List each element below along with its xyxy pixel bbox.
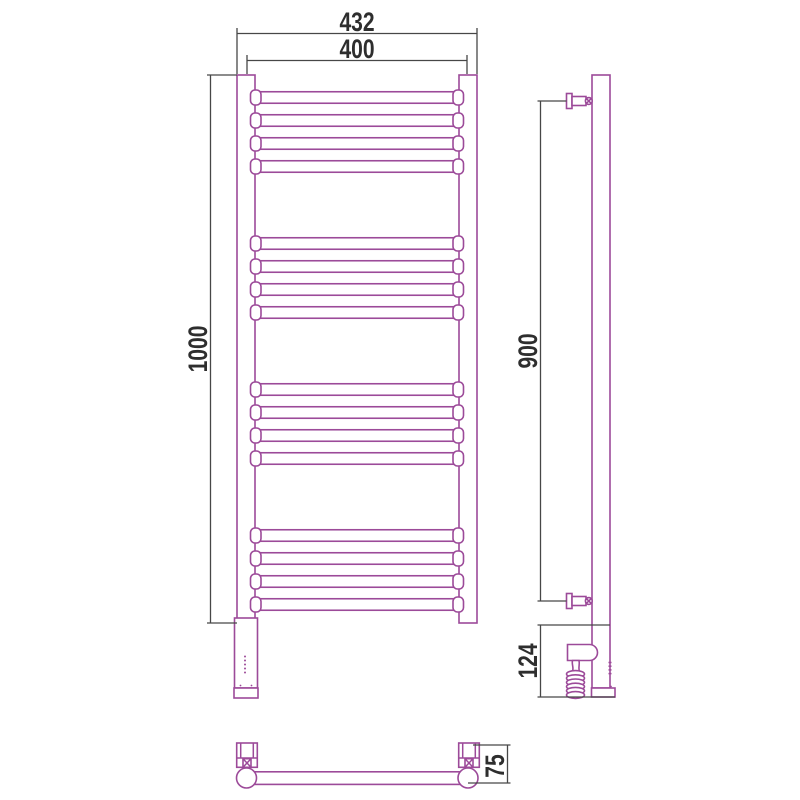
rung-end-fitting [453, 259, 464, 274]
element-dot [251, 685, 253, 687]
rung-end-fitting [453, 382, 464, 397]
rung-end-fitting [453, 597, 464, 612]
rung-body [253, 407, 461, 419]
rung-end-fitting [453, 451, 464, 466]
rung-end-fitting [251, 113, 262, 128]
rung-body [253, 599, 461, 611]
rung-end-fitting [251, 259, 262, 274]
dim-label-432: 432 [339, 8, 374, 38]
element-indicator-dot [244, 664, 246, 666]
rung-end-fitting [251, 551, 262, 566]
power-cord-coil [567, 671, 585, 699]
rung-end-fitting [251, 90, 262, 105]
rung-body [253, 576, 461, 588]
rung-end-fitting [251, 136, 262, 151]
element-housing-side [568, 645, 598, 661]
rung-end-fitting [453, 528, 464, 543]
rung-end-fitting [453, 282, 464, 297]
rung-end-fitting [453, 428, 464, 443]
rung-end-fitting [453, 574, 464, 589]
bracket-body [572, 597, 586, 606]
dim-label-1000: 1000 [184, 326, 214, 373]
element-indicator-dot [244, 668, 246, 670]
dim-label-900: 900 [514, 333, 544, 368]
rung-end-fitting [251, 597, 262, 612]
wall-bracket-bottom [567, 594, 593, 609]
bottom-view [237, 743, 480, 788]
rung-body [253, 138, 461, 150]
rung-end-fitting [453, 90, 464, 105]
rung-body [253, 261, 461, 273]
rung-body [253, 430, 461, 442]
rung-end-fitting [251, 451, 262, 466]
drawing-canvas: 432 400 1000 900 124 75 [0, 0, 800, 800]
side-dot [610, 686, 612, 688]
rung-end-fitting [453, 305, 464, 320]
element-housing-front [235, 618, 258, 688]
front-heating-element [234, 618, 258, 698]
rung-end-fitting [453, 236, 464, 251]
rung-end-fitting [453, 159, 464, 174]
rung-end-fitting [453, 551, 464, 566]
rung-end-fitting [251, 382, 262, 397]
rung-end-fitting [251, 282, 262, 297]
dimension-center-width: 400 [247, 35, 467, 74]
bottom-left-tube-section [237, 768, 257, 788]
wall-bracket-top [567, 94, 593, 109]
bottom-bracket-left [237, 743, 258, 767]
rung-end-fitting [251, 574, 262, 589]
rung-body [253, 161, 461, 173]
rung-end-fitting [251, 528, 262, 543]
rung-end-fitting [251, 305, 262, 320]
rung-end-fitting [453, 136, 464, 151]
rung-body [253, 307, 461, 319]
element-indicator-dot [244, 656, 246, 658]
bracket-body [572, 97, 586, 106]
rung-end-fitting [453, 113, 464, 128]
front-rungs [251, 90, 464, 612]
element-indicator-dot [244, 660, 246, 662]
rung-body [253, 384, 461, 396]
rung-body [253, 92, 461, 104]
side-tube [592, 75, 610, 688]
element-end-cap-front [234, 688, 258, 698]
bracket-flange [567, 594, 573, 609]
side-view [567, 75, 616, 698]
rung-end-fitting [251, 236, 262, 251]
rung-end-fitting [251, 159, 262, 174]
dimension-overall-height: 1000 [184, 75, 237, 623]
towel-rail-technical-drawing: 432 400 1000 900 124 75 [0, 0, 800, 800]
rung-body [253, 284, 461, 296]
bottom-rung-bar [247, 772, 468, 785]
rung-end-fitting [453, 405, 464, 420]
rung-body [253, 238, 461, 250]
bracket-flange [567, 94, 573, 109]
rung-end-fitting [251, 405, 262, 420]
dim-label-75: 75 [481, 754, 511, 777]
rung-end-fitting [251, 428, 262, 443]
bottom-bracket-right [459, 743, 480, 767]
element-indicator-dot [244, 672, 246, 674]
front-view [234, 75, 477, 698]
rung-body [253, 530, 461, 542]
bottom-right-tube-section [458, 768, 478, 788]
rung-body [253, 553, 461, 565]
element-dot [240, 685, 242, 687]
rung-body [253, 453, 461, 465]
rung-body [253, 115, 461, 127]
side-end-cap [592, 688, 616, 697]
dim-label-124: 124 [514, 643, 544, 679]
dimension-bracket-spacing: 900 [514, 101, 567, 601]
dim-label-400: 400 [339, 35, 374, 65]
